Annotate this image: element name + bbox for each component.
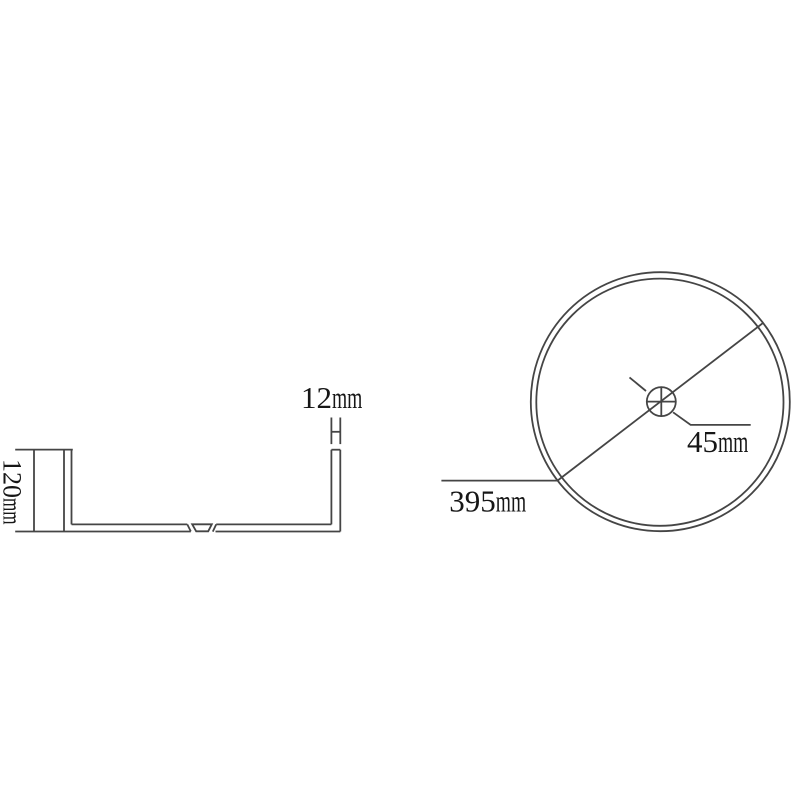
svg-text:mm: mm [0,498,27,524]
svg-text:mm: mm [718,424,748,459]
svg-text:mm: mm [496,484,526,519]
svg-text:395: 395 [449,484,496,519]
svg-text:45: 45 [687,424,718,459]
svg-text:12: 12 [301,380,332,415]
svg-text:120: 120 [0,459,27,498]
svg-text:mm: mm [332,380,362,415]
